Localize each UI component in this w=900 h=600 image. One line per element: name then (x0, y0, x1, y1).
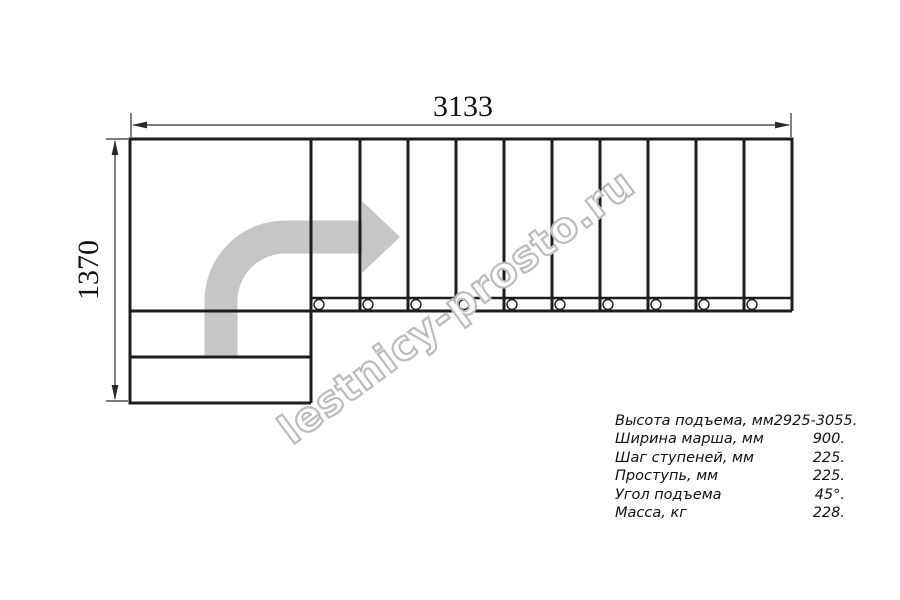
spec-row: Масса, кг 228. (615, 504, 845, 522)
spec-label: Шаг ступеней, мм (615, 449, 754, 467)
baluster-circle (603, 300, 613, 310)
baluster-circle (555, 300, 565, 310)
baluster-circles (314, 300, 757, 310)
spec-label: Масса, кг (615, 504, 687, 522)
baluster-circle (507, 300, 517, 310)
baluster-circle (314, 300, 324, 310)
spec-table: Высота подъема, мм 2925-3055. Ширина мар… (615, 412, 845, 522)
spec-value: 225. (813, 467, 845, 485)
spec-row: Ширина марша, мм 900. (615, 430, 845, 448)
spec-value: 228. (813, 504, 845, 522)
dimension-arrow-right (775, 122, 790, 129)
spec-value: 45°. (815, 486, 845, 504)
spec-label: Высота подъема, мм (615, 412, 774, 430)
height-dimension-label: 1370 (72, 240, 105, 300)
dimension-arrow-bottom (112, 385, 119, 400)
height-dimension: 1370 (72, 139, 128, 401)
dimension-arrow-left (132, 122, 147, 129)
baluster-circle (747, 300, 757, 310)
spec-row: Высота подъема, мм 2925-3055. (615, 412, 845, 430)
direction-arrow-head (362, 201, 400, 273)
baluster-circle (363, 300, 373, 310)
spec-label: Проступь, мм (615, 467, 718, 485)
drawing-canvas: 3133 1370 lestnicy-prosto.ru Высота подъ… (0, 0, 900, 600)
spec-label: Угол подъема (615, 486, 722, 504)
width-dimension: 3133 (131, 90, 791, 137)
spec-value: 225. (813, 449, 845, 467)
baluster-circle (699, 300, 709, 310)
spec-value: 900. (813, 430, 845, 448)
baluster-circle (651, 300, 661, 310)
spec-row: Проступь, мм 225. (615, 467, 845, 485)
spec-row: Шаг ступеней, мм 225. (615, 449, 845, 467)
width-dimension-label: 3133 (433, 90, 493, 123)
dimension-arrow-top (112, 140, 119, 155)
spec-label: Ширина марша, мм (615, 430, 764, 448)
spec-row: Угол подъема 45°. (615, 486, 845, 504)
spec-value: 2925-3055. (774, 412, 858, 430)
